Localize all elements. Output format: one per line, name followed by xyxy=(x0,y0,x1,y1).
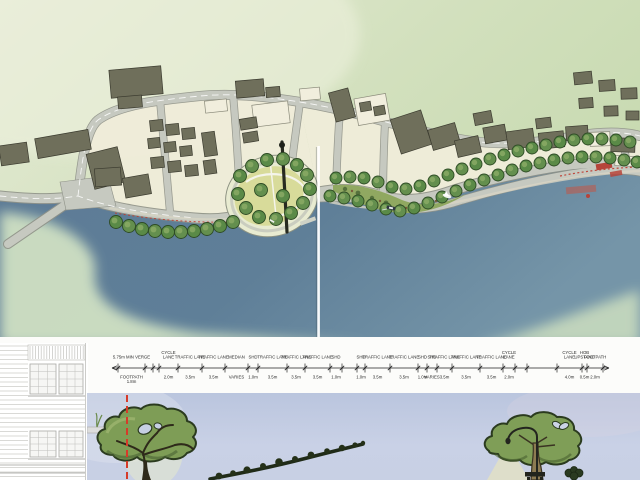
tree xyxy=(442,169,454,181)
dim-label-bottom: 1.0m xyxy=(356,375,366,380)
tree xyxy=(534,157,546,169)
tree xyxy=(400,183,412,195)
tree xyxy=(253,211,266,224)
building xyxy=(184,164,198,176)
tree xyxy=(277,153,290,166)
tree xyxy=(110,216,123,229)
tree xyxy=(261,154,274,167)
building xyxy=(109,66,163,98)
tree xyxy=(526,142,538,154)
dim-label-bottom: 1.0m xyxy=(331,375,341,380)
building xyxy=(579,98,594,109)
dim-label-bottom: 3.5m xyxy=(461,375,471,380)
tree xyxy=(386,181,398,193)
building xyxy=(621,88,637,100)
section-sheet: 5.75m MIN VERGEFOOTPATH1.8mCYCLELANE2.0m… xyxy=(0,337,640,480)
tree xyxy=(450,185,462,197)
building xyxy=(300,87,321,101)
dim-label-bottom: 3.5m xyxy=(268,375,278,380)
building xyxy=(373,105,385,116)
tree xyxy=(214,220,227,233)
tree xyxy=(234,170,247,183)
dim-label-top: TRAFFIC LANE xyxy=(198,355,229,360)
building xyxy=(150,156,164,168)
section-cut-line xyxy=(316,146,320,345)
tree xyxy=(149,225,162,238)
dim-label-bottom: 1.8m xyxy=(127,379,137,384)
building xyxy=(359,101,371,112)
building xyxy=(180,145,193,156)
tree xyxy=(162,226,175,239)
dim-label-top: SHD xyxy=(248,355,257,360)
tree xyxy=(631,156,640,168)
tree xyxy=(604,152,616,164)
tree xyxy=(232,188,245,201)
dim-label-bottom: 2.0m xyxy=(504,375,514,380)
dim-label-top: TRAFFIC LANE xyxy=(389,355,420,360)
building xyxy=(167,160,181,172)
dim-label-top: TRAFFIC LANE xyxy=(302,355,333,360)
building xyxy=(626,111,639,120)
building xyxy=(573,71,592,85)
tree xyxy=(352,195,364,207)
tree xyxy=(554,136,566,148)
tree xyxy=(478,174,490,186)
tree xyxy=(330,172,342,184)
building xyxy=(181,127,195,139)
building xyxy=(165,123,179,135)
tree xyxy=(576,151,588,163)
tree xyxy=(408,202,420,214)
tree xyxy=(618,154,630,166)
tree xyxy=(540,139,552,151)
dimension-strip: 5.75m MIN VERGEFOOTPATH1.8mCYCLELANE2.0m… xyxy=(100,344,620,392)
site-plan xyxy=(0,0,640,345)
tree xyxy=(291,159,304,172)
building xyxy=(122,174,151,198)
tree xyxy=(568,134,580,146)
dim-label-bottom: 3.5m xyxy=(399,375,409,380)
tree xyxy=(590,151,602,163)
tree xyxy=(136,223,149,236)
building xyxy=(252,101,290,127)
dim-label-bottom: 3.5m xyxy=(209,375,219,380)
building xyxy=(203,159,217,175)
tree xyxy=(285,207,298,220)
building xyxy=(235,79,264,98)
building xyxy=(94,167,121,187)
tree xyxy=(297,197,310,210)
dim-label-top: TRAFFIC LANE xyxy=(476,355,507,360)
tree xyxy=(520,160,532,172)
tree xyxy=(414,180,426,192)
dim-label-bottom: VARIES xyxy=(229,375,245,380)
tree xyxy=(492,169,504,181)
tree xyxy=(610,134,622,146)
tree xyxy=(255,184,268,197)
street-elevation xyxy=(87,393,640,480)
tree xyxy=(456,163,468,175)
dim-label-top: SHD xyxy=(331,355,340,360)
dim-label-bottom: 3.5m xyxy=(313,375,323,380)
dim-label-top: SHD xyxy=(418,355,427,360)
tree xyxy=(596,133,608,145)
drawing-sheet: 5.75m MIN VERGEFOOTPATH1.8mCYCLELANE2.0m… xyxy=(0,0,640,480)
building xyxy=(599,79,616,91)
dim-label-bottom: 0.5m xyxy=(580,375,590,380)
building xyxy=(266,86,281,97)
building xyxy=(149,119,163,131)
parapet-slats xyxy=(28,345,85,360)
tree xyxy=(428,175,440,187)
tree xyxy=(188,225,201,238)
tree xyxy=(123,220,136,233)
dim-label-bottom: 2.0m xyxy=(590,375,600,380)
tree xyxy=(338,192,350,204)
tree xyxy=(372,176,384,188)
tree xyxy=(582,133,594,145)
dim-label-bottom: 3.5m xyxy=(440,375,450,380)
building-facade-sketch xyxy=(0,343,88,480)
tree xyxy=(506,164,518,176)
mast xyxy=(279,142,285,148)
tree xyxy=(498,149,510,161)
tree xyxy=(344,171,356,183)
tree xyxy=(201,223,214,236)
tree xyxy=(277,190,290,203)
tree xyxy=(246,160,259,173)
dim-label-top: MEDIAN xyxy=(228,355,245,360)
tree xyxy=(548,154,560,166)
tree xyxy=(301,169,314,182)
building xyxy=(239,117,258,131)
dim-label-top: LANE xyxy=(163,355,174,360)
tree xyxy=(366,199,378,211)
tree xyxy=(624,136,636,148)
building xyxy=(148,137,161,148)
tree xyxy=(270,213,283,226)
dim-label-bottom: 2.0m xyxy=(164,375,174,380)
building xyxy=(204,99,227,113)
building xyxy=(535,117,551,129)
building xyxy=(164,141,177,152)
tree xyxy=(324,190,336,202)
building xyxy=(0,142,29,166)
tree xyxy=(227,216,240,229)
tree xyxy=(240,202,253,215)
dim-label-bottom: 1.0m xyxy=(248,375,258,380)
dim-label-bottom: VARIES xyxy=(424,375,440,380)
dim-label-bottom: 3.5m xyxy=(487,375,497,380)
dim-label-top: LANE xyxy=(503,355,514,360)
dim-label-bottom: 4.0m xyxy=(565,375,575,380)
dim-label-bottom: 3.5m xyxy=(373,375,383,380)
tree xyxy=(304,183,317,196)
tree xyxy=(464,179,476,191)
dim-label-bottom: 3.5m xyxy=(291,375,301,380)
building xyxy=(604,106,618,116)
dim-label-top: FOOTPATH xyxy=(584,355,607,360)
tree xyxy=(512,145,524,157)
tree xyxy=(358,172,370,184)
dim-label-top: 5.75m MIN VERGE xyxy=(113,355,150,360)
building xyxy=(118,95,143,109)
building xyxy=(483,124,507,144)
dim-label-bottom: 3.5m xyxy=(185,375,195,380)
tree xyxy=(175,226,188,239)
tree xyxy=(394,205,406,217)
building xyxy=(242,131,258,143)
tree xyxy=(470,158,482,170)
tree xyxy=(484,153,496,165)
tree xyxy=(422,197,434,209)
tree xyxy=(562,152,574,164)
